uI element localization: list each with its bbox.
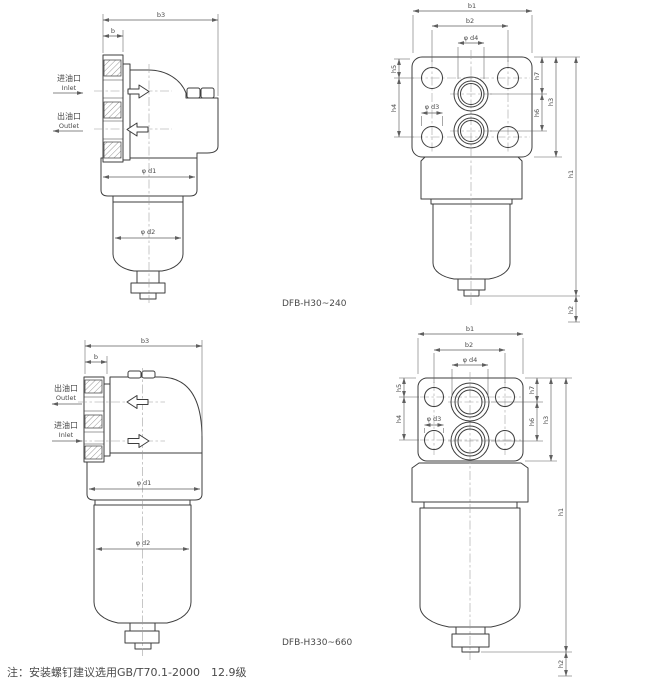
outlet-label-cn: 出油口 xyxy=(57,111,81,121)
dim-label-h3: h3 xyxy=(542,416,550,424)
bolt-head xyxy=(187,88,200,98)
inlet-label-cn: 进油口 xyxy=(54,420,78,430)
view-front-large: b1 b2 φ d4 φ d3 h5 h4 h7 h6 h3 xyxy=(395,325,572,676)
dim-label-d3: φ d3 xyxy=(427,415,442,423)
inlet-label-en: Inlet xyxy=(59,431,74,439)
drain-neck xyxy=(137,271,159,283)
dim-label-h2: h2 xyxy=(557,660,565,668)
dim-label-b: b xyxy=(94,353,98,361)
dim-label-h4: h4 xyxy=(395,415,403,423)
dim-label-h1: h1 xyxy=(567,170,575,178)
elbow-head-outline xyxy=(110,377,202,453)
drain-nut xyxy=(125,631,159,643)
caption-series-large: DFB-H330~660 xyxy=(282,638,352,648)
dim-label-d2: φ d2 xyxy=(136,539,151,547)
dim-label-h6: h6 xyxy=(528,418,536,426)
inlet-label-cn: 进油口 xyxy=(57,73,81,83)
drain-stub xyxy=(140,293,156,299)
drawing-sheet: b3 b φ d1 φ d2 进油口 Inlet 出油口 Outlet xyxy=(0,0,650,682)
elbow-head-outline xyxy=(130,70,218,158)
view-side-small: b3 b φ d1 φ d2 进油口 Inlet 出油口 Outlet xyxy=(53,11,218,303)
bolt-head xyxy=(142,371,155,378)
dim-label-b: b xyxy=(111,27,115,35)
dim-label-b2: b2 xyxy=(466,17,474,25)
dim-label-h7: h7 xyxy=(533,72,541,80)
drain-stub xyxy=(135,643,151,649)
flange-hatch-block xyxy=(85,380,102,393)
dim-label-h4: h4 xyxy=(390,104,398,112)
bowl-outline xyxy=(113,202,183,271)
view-front-small: b1 b2 φ d4 φ d3 h5 h4 h7 h6 h3 xyxy=(390,2,580,322)
drain-stub xyxy=(462,647,479,652)
flange-adapter xyxy=(104,384,110,456)
outlet-label-en: Outlet xyxy=(59,122,80,130)
outlet-label-en: Outlet xyxy=(56,394,77,402)
bowl-outline xyxy=(433,204,510,279)
bolt-head xyxy=(201,88,214,98)
outlet-label-cn: 出油口 xyxy=(54,383,78,393)
flange-hatch-block xyxy=(104,142,121,158)
caption-series-small: DFB-H30~240 xyxy=(282,299,347,309)
bowl-joint-ring xyxy=(424,502,517,508)
dim-label-d3: φ d3 xyxy=(425,103,440,111)
dim-label-b3: b3 xyxy=(141,337,149,345)
flange-hatch-block xyxy=(85,446,102,459)
drain-neck xyxy=(456,627,485,634)
drain-nut xyxy=(452,634,489,647)
dim-label-h3: h3 xyxy=(547,98,555,106)
flange-hatch-block xyxy=(85,415,102,428)
flange-hatch-block xyxy=(104,60,121,76)
dim-label-h5: h5 xyxy=(390,65,398,73)
drain-stub xyxy=(464,290,479,296)
flange-adapter xyxy=(123,64,130,160)
dim-label-d4: φ d4 xyxy=(463,356,478,364)
drain-nut xyxy=(458,279,485,290)
drawing-svg: b3 b φ d1 φ d2 进油口 Inlet 出油口 Outlet xyxy=(0,0,650,682)
head-block-outline xyxy=(421,157,522,199)
bowl-joint-ring xyxy=(431,199,512,204)
dim-label-b3: b3 xyxy=(157,11,165,19)
flange-hatch-block xyxy=(104,102,121,118)
dim-label-h5: h5 xyxy=(395,384,403,392)
bowl-joint-ring xyxy=(113,196,183,202)
dim-label-b1: b1 xyxy=(468,2,476,10)
drain-nut xyxy=(131,283,165,293)
dim-label-d4: φ d4 xyxy=(464,34,479,42)
view-side-large: b3 b φ d1 φ d2 出油口 Outlet 进油口 Inlet xyxy=(52,337,202,656)
dim-label-b2: b2 xyxy=(465,341,473,349)
dim-label-h6: h6 xyxy=(533,109,541,117)
dim-label-d1: φ d1 xyxy=(142,167,157,175)
inlet-label-en: Inlet xyxy=(62,84,77,92)
dim-label-b1: b1 xyxy=(466,325,474,333)
dim-label-d2: φ d2 xyxy=(141,228,156,236)
dim-label-h2: h2 xyxy=(567,306,575,314)
footnote-text: 注：安装螺钉建议选用GB/T70.1-2000 12.9级 xyxy=(7,665,246,679)
dim-label-h7: h7 xyxy=(528,386,536,394)
bolt-head xyxy=(128,371,141,378)
dim-label-h1: h1 xyxy=(557,508,565,516)
dim-label-d1: φ d1 xyxy=(137,479,152,487)
